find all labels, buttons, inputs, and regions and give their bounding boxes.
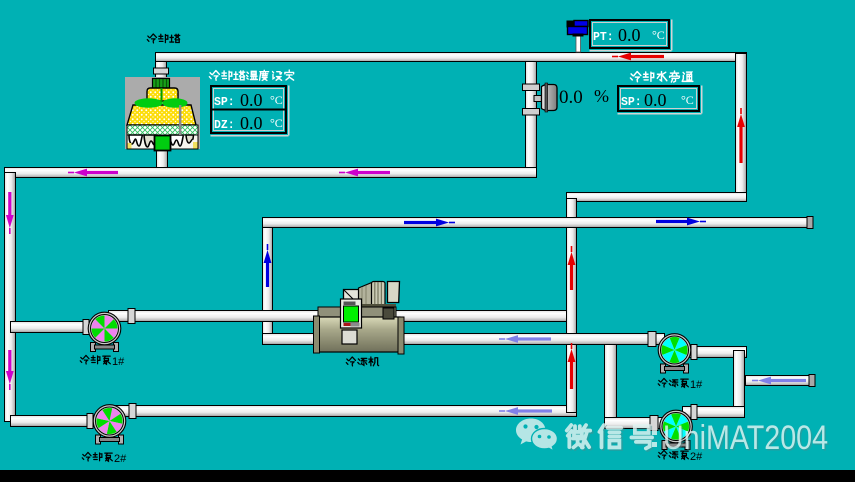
svg-text:1#: 1# xyxy=(690,379,703,391)
svg-text:SP:: SP: xyxy=(214,96,235,109)
svg-text:SP:: SP: xyxy=(621,96,642,109)
svg-text:1#: 1# xyxy=(112,356,125,368)
svg-text:°C: °C xyxy=(652,28,665,42)
svg-text:°C: °C xyxy=(270,116,283,130)
svg-text:PT:: PT: xyxy=(593,31,614,44)
svg-text:°C: °C xyxy=(681,93,694,107)
svg-text:°C: °C xyxy=(270,93,283,107)
svg-text:UniMAT2004: UniMAT2004 xyxy=(663,419,828,457)
svg-text:0.0: 0.0 xyxy=(559,87,583,108)
svg-text:0.0: 0.0 xyxy=(240,113,263,133)
svg-text:%: % xyxy=(594,86,609,106)
svg-text:0.0: 0.0 xyxy=(240,90,263,110)
svg-text:DZ:: DZ: xyxy=(214,119,235,132)
svg-text:0.0: 0.0 xyxy=(644,90,667,110)
svg-text:0.0: 0.0 xyxy=(618,25,641,45)
svg-text:2#: 2# xyxy=(114,453,127,465)
